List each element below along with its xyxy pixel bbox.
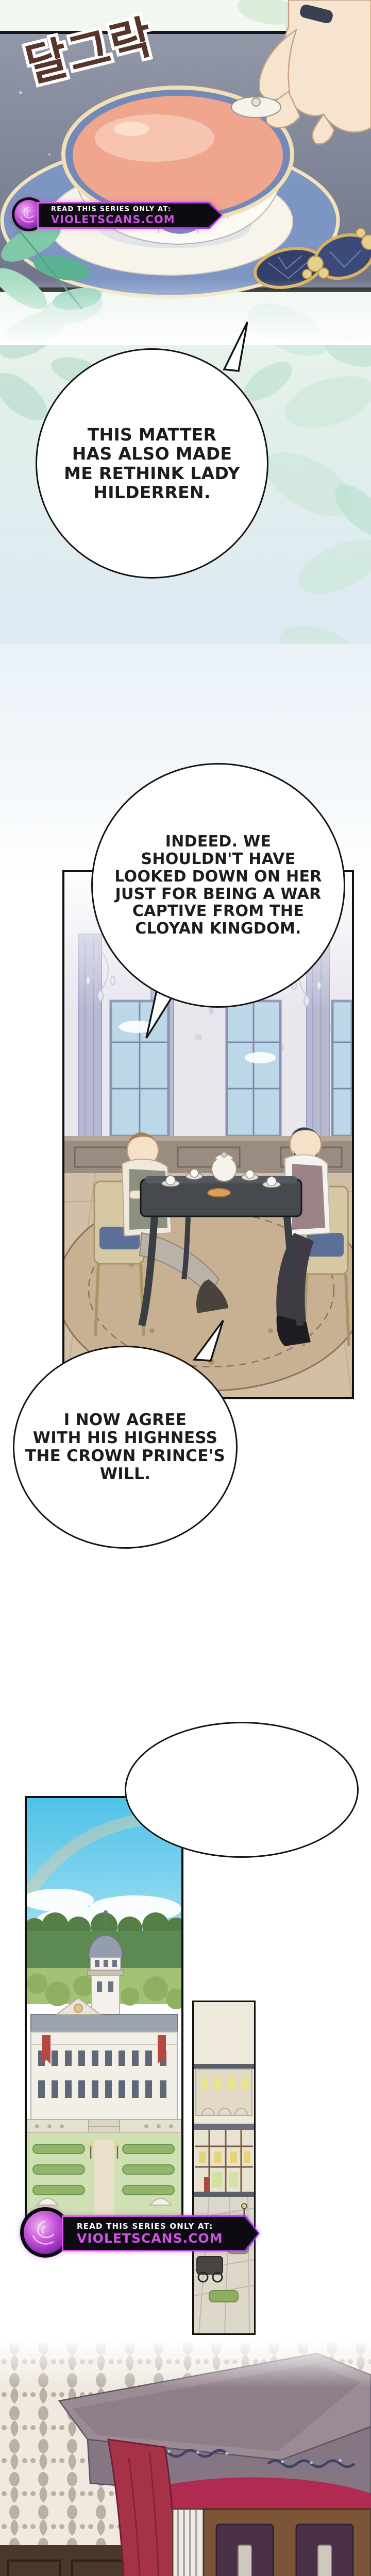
panel-town [192, 2001, 256, 2335]
speech-bubble-1: THIS MATTER HAS ALSO MADE ME RETHINK LAD… [36, 348, 268, 579]
speech-line: HILDERREN. [93, 483, 210, 502]
speech-line: INDEED. WE [165, 833, 272, 851]
watermark-site: VIOLETSCANS.COM [77, 2231, 223, 2246]
watermark-badge-top: READ THIS SERIES ONLY AT: VIOLETSCANS.CO… [11, 197, 223, 234]
speech-bubble-silent [125, 1722, 359, 1858]
watermark-read-line: READ THIS SERIES ONLY AT: [51, 206, 171, 213]
teapot-lid [231, 97, 281, 117]
bubble3-tail [188, 1316, 229, 1363]
webtoon-page: 달그락 READ THIS SERIES ONLY AT: [0, 0, 371, 2576]
town-illustration [194, 2002, 254, 2333]
sfx-clatter: 달그락 [13, 0, 199, 109]
speech-line: WITH HIS HIGHNESS [33, 1429, 218, 1447]
speech-line: I NOW AGREE [64, 1411, 187, 1429]
watermark-banner: READ THIS SERIES ONLY AT: VIOLETSCANS.CO… [62, 2215, 260, 2251]
bubble1-tail [219, 315, 263, 372]
speech-line: CLOYAN KINGDOM. [135, 920, 301, 938]
speech-line: LOOKED DOWN ON HER [114, 868, 322, 886]
speech-line: CAPTIVE FROM THE [132, 903, 304, 920]
watermark-badge-mid: READ THIS SERIES ONLY AT: VIOLETSCANS.CO… [20, 2207, 260, 2260]
scene-bedroom [0, 2339, 371, 2576]
striped-panel [173, 2509, 204, 2576]
watermark-site: VIOLETSCANS.COM [51, 213, 175, 226]
speech-line: SHOULDN'T HAVE [141, 851, 296, 868]
panel-teacup-scene: 달그락 [0, 0, 371, 345]
speech-line: THE CROWN PRINCE'S [25, 1447, 225, 1465]
speech-bubble-2: INDEED. WE SHOULDN'T HAVE LOOKED DOWN ON… [91, 763, 345, 1008]
watermark-read-line: READ THIS SERIES ONLY AT: [77, 2222, 213, 2231]
sfx-text: 달그락 [21, 10, 159, 93]
watermark-banner: READ THIS SERIES ONLY AT: VIOLETSCANS.CO… [37, 202, 223, 229]
bedroom-illustration [0, 2339, 371, 2576]
panel-palace [25, 1796, 183, 2222]
speech-line: WILL. [100, 1465, 151, 1483]
palace-gardens [27, 2120, 181, 2219]
speech-bubble-3: I NOW AGREE WITH HIS HIGHNESS THE CROWN … [13, 1346, 238, 1549]
speech-line: THIS MATTER [88, 425, 217, 444]
speech-line: HAS ALSO MADE [72, 444, 232, 463]
palace-illustration [27, 1798, 181, 2219]
speech-line: ME RETHINK LADY [64, 464, 240, 483]
palace-facade [31, 1998, 177, 2120]
headboard [204, 2509, 371, 2576]
speech-line: JUST FOR BEING A WAR [115, 886, 322, 903]
